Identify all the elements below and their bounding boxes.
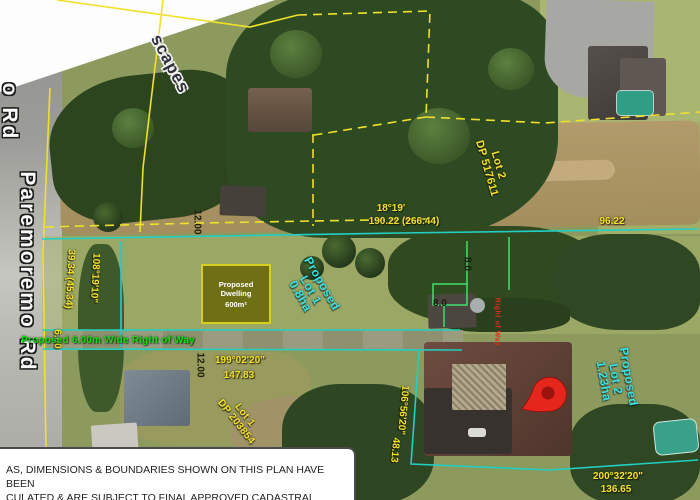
bearing-south-west: 199°02'20" xyxy=(215,356,265,367)
right-of-way-label: Proposed 6.00m Wide Right of Way xyxy=(21,336,195,347)
existing-lot-1-label: Lot 1 DP 203854 xyxy=(215,391,264,446)
plan-labels: Paremoremo Rd o Rd scapes Proposed Lot 1… xyxy=(0,0,700,500)
road-name-label-partial: o Rd xyxy=(0,83,20,142)
disclaimer-line: AS, DIMENSIONS & BOUNDARIES SHOWN ON THI… xyxy=(6,463,348,491)
offset-8-horizontal: 8.0 xyxy=(433,299,447,310)
distance-north-east: 96.22 xyxy=(599,217,624,228)
proposed-dwelling-area: 600m² xyxy=(225,300,247,309)
watermark-text: scapes xyxy=(147,32,193,97)
distance-north: 190.22 (266.44) xyxy=(369,217,440,228)
bearing-south-east: 200°32'20" xyxy=(593,472,643,483)
proposed-dwelling-title: Proposed Dwelling xyxy=(203,280,269,298)
right-of-way-red-label: Right of Way xyxy=(493,298,500,347)
proposed-lot-1-label: Proposed Lot 1 0.8ha xyxy=(280,255,342,325)
bearing-lot-split: 106°56'20" xyxy=(395,385,410,436)
distance-south-east: 136.65 xyxy=(601,485,632,496)
bearing-north: 18°19' xyxy=(377,204,406,215)
offset-8-vertical: 8.0 xyxy=(461,257,472,271)
existing-lot-2-label: Lot 2 DP 517611 xyxy=(473,136,511,198)
distance-lot-split: 48.13 xyxy=(388,437,401,463)
distance-south-west: 147.83 xyxy=(224,371,255,382)
subdivision-plan-map: Paremoremo Rd o Rd scapes Proposed Lot 1… xyxy=(0,0,700,500)
disclaimer-box: AS, DIMENSIONS & BOUNDARIES SHOWN ON THI… xyxy=(0,447,356,500)
offset-12-bottom: 12.00 xyxy=(194,352,205,377)
disclaimer-line: CULATED & ARE SUBJECT TO FINAL APPROVED … xyxy=(6,491,348,500)
proposed-lot-2-label: Proposed Lot 2 1.23ha xyxy=(592,346,640,411)
offset-12-top: 12.00 xyxy=(191,209,202,234)
distance-road-frontage: 39.34 (45.34) xyxy=(62,249,76,309)
proposed-dwelling-box: Proposed Dwelling 600m² xyxy=(201,264,271,324)
bearing-road-frontage: 108°19'10" xyxy=(87,253,100,304)
